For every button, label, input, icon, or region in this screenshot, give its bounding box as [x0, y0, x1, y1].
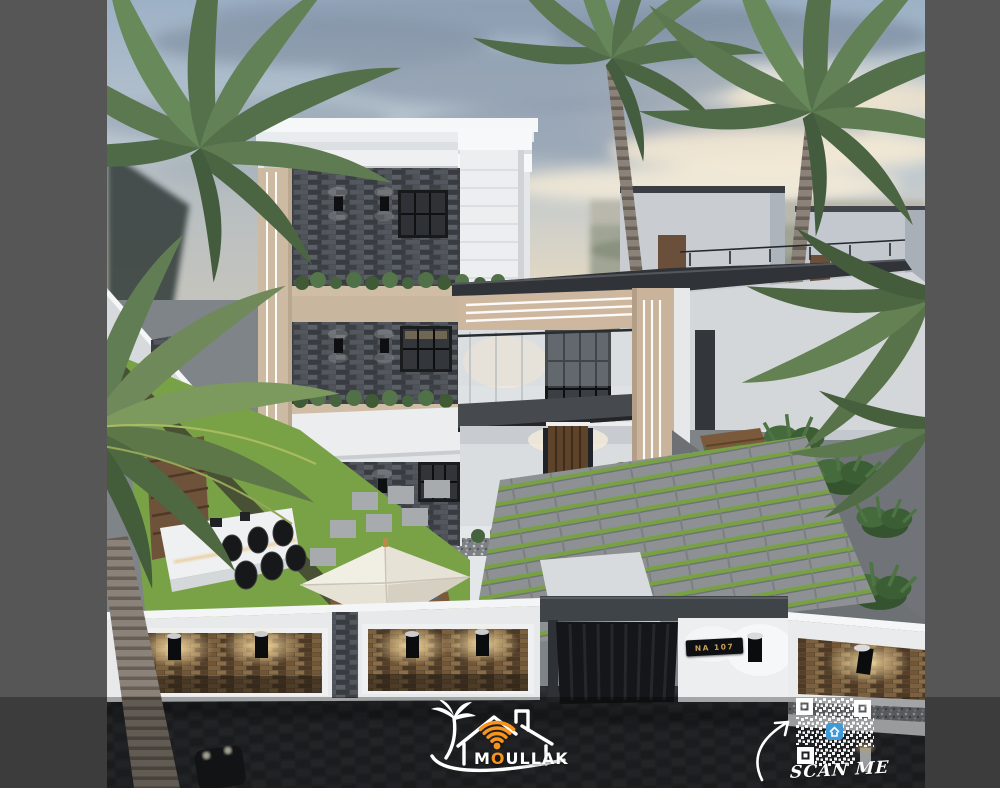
logo-wifi-arcs — [480, 722, 513, 741]
logo-palm-trunk — [446, 718, 455, 758]
gate-pillar-white — [678, 618, 794, 702]
qr-center-badge — [826, 723, 843, 740]
third-floor-stone-wall — [292, 168, 460, 290]
exterior-render-poster: NA 107 MOULLAK — [0, 0, 1000, 788]
grid-window-f3 — [398, 190, 448, 238]
wall-stone-pillar — [332, 612, 358, 698]
gate-door — [556, 622, 678, 704]
house-number-text: NA 107 — [695, 641, 735, 652]
logo-roof-right — [522, 726, 552, 744]
cylinder-wall-light — [748, 636, 762, 662]
render-scene — [0, 0, 1000, 788]
wordmark-accent-letter: O — [491, 749, 506, 768]
palm-house-wifi-icon — [430, 700, 580, 782]
entrance-gate — [540, 596, 794, 704]
wordmark-suffix: ULLAK — [506, 749, 569, 768]
logo-palm-fronds — [431, 700, 476, 720]
lit-stone-panel-2 — [362, 624, 534, 694]
grid-window-f2 — [400, 326, 452, 372]
house-number-plate: NA 107 — [686, 638, 744, 657]
wordmark-prefix: M — [474, 749, 491, 768]
glass-balcony — [458, 330, 632, 432]
moullak-logo: MOULLAK — [430, 700, 580, 782]
logo-wordmark: MOULLAK — [474, 749, 569, 768]
qr-code-icon — [796, 698, 874, 766]
